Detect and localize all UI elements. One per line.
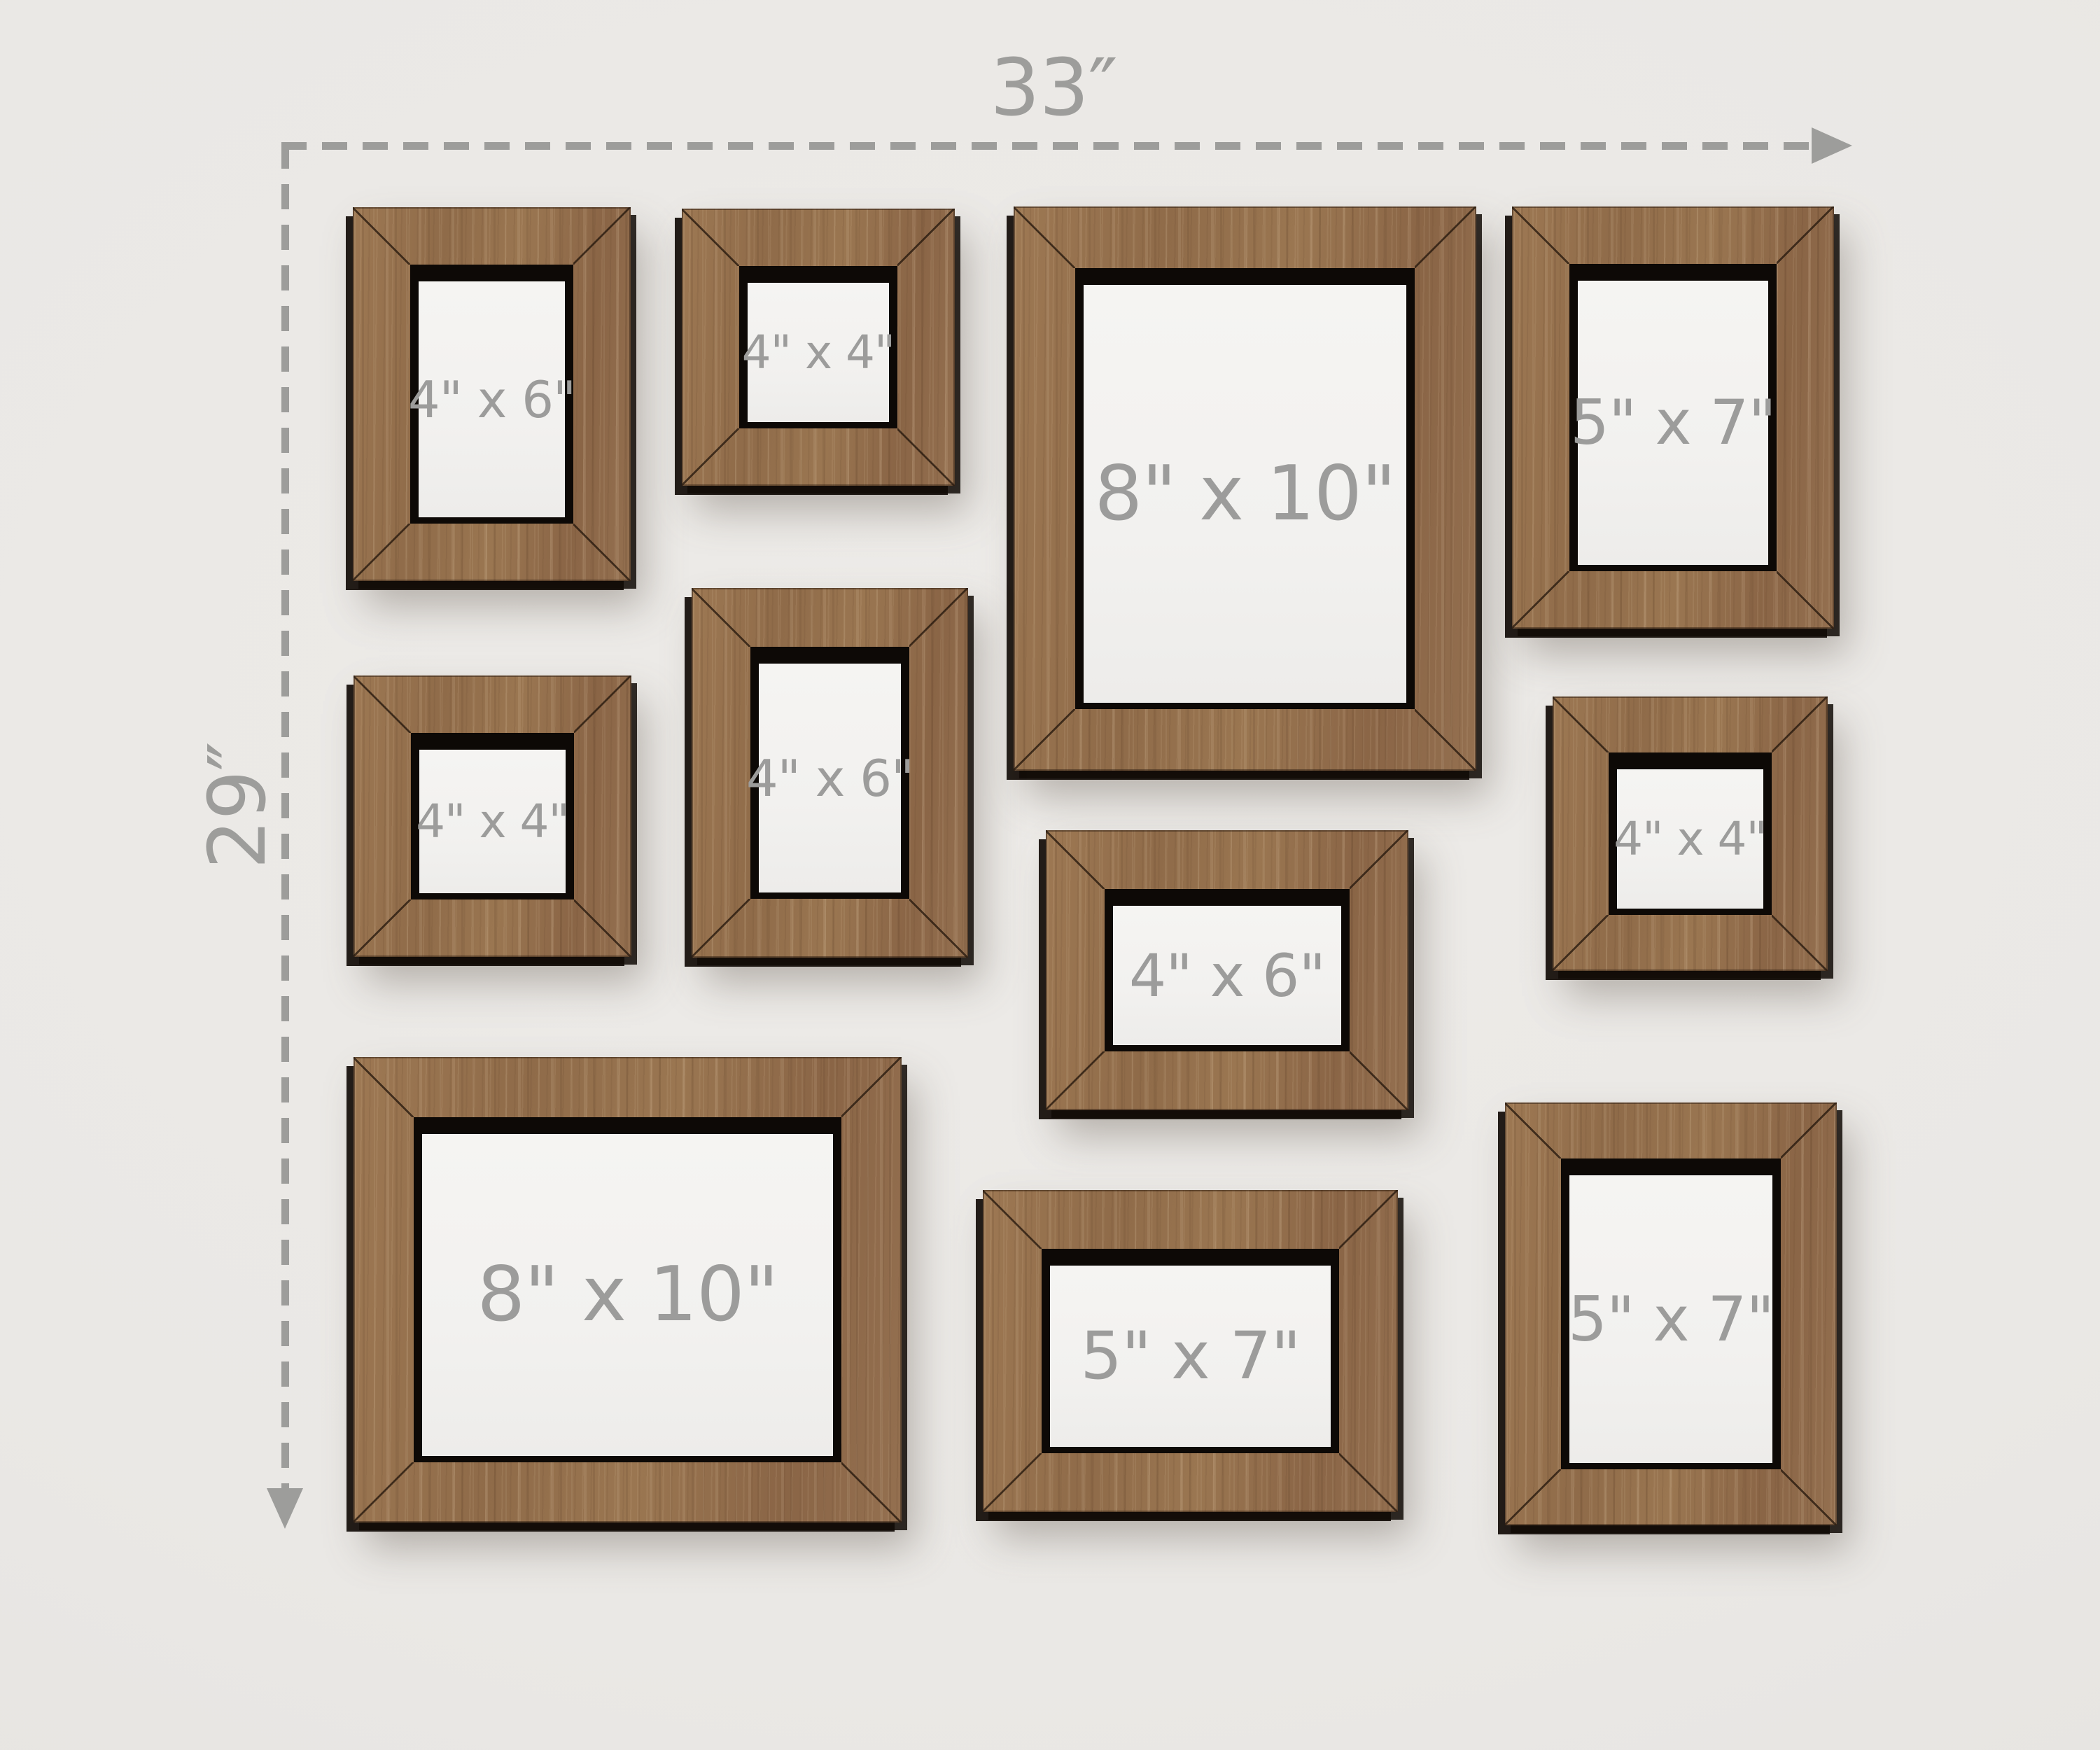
frame-opening: 4" x 4" <box>1609 752 1772 915</box>
frame-4x6-center-landscape: 4" x 6" <box>1046 830 1408 1110</box>
frame-4x6-top-left: 4" x 6" <box>353 207 631 581</box>
frame-5x7-bottom-landscape: 5" x 7" <box>983 1190 1398 1512</box>
frame-size-label: 4" x 4" <box>416 799 569 845</box>
frame-size-label: 4" x 4" <box>1613 816 1767 862</box>
frame-size-label: 5" x 7" <box>1080 1324 1300 1389</box>
frame-8x10-top: 8" x 10" <box>1014 206 1476 771</box>
gallery-wall-mockup: 33″ 29″ 4" x 6" 4" x 4" 8" x 10" 5" x 7"… <box>0 0 2100 1750</box>
frame-opening: 5" x 7" <box>1561 1158 1781 1469</box>
width-dimension-label: 33″ <box>973 49 1134 127</box>
arrow-down-icon <box>267 1488 303 1529</box>
height-dimension-line <box>281 143 289 1491</box>
frame-4x6-middle: 4" x 6" <box>692 588 968 958</box>
frame-size-label: 4" x 4" <box>742 330 895 376</box>
frame-opening: 4" x 6" <box>750 647 909 899</box>
frame-5x7-top-right: 5" x 7" <box>1512 206 1834 629</box>
frame-size-label: 5" x 7" <box>1568 1289 1774 1350</box>
frame-size-label: 4" x 6" <box>746 753 913 804</box>
frame-opening: 8" x 10" <box>1075 268 1415 709</box>
frame-size-label: 4" x 6" <box>1129 946 1325 1005</box>
frame-opening: 4" x 4" <box>739 266 897 428</box>
frame-opening: 4" x 6" <box>410 265 573 524</box>
frame-opening: 4" x 4" <box>411 733 574 899</box>
arrow-right-icon <box>1812 127 1852 164</box>
frame-4x4-middle-right: 4" x 4" <box>1553 696 1828 971</box>
frame-4x4-middle-left: 4" x 4" <box>353 675 631 957</box>
frame-opening: 8" x 10" <box>414 1117 841 1462</box>
frame-opening: 5" x 7" <box>1569 264 1777 571</box>
height-dimension-label: 29″ <box>199 718 277 893</box>
width-dimension-line <box>281 142 1814 150</box>
frame-8x10-bottom-left-landscape: 8" x 10" <box>353 1057 902 1522</box>
frame-size-label: 5" x 7" <box>1570 392 1776 454</box>
frame-size-label: 8" x 10" <box>477 1257 778 1333</box>
frame-5x7-bottom-right: 5" x 7" <box>1505 1102 1837 1525</box>
frame-size-label: 4" x 6" <box>408 374 575 425</box>
frame-4x4-top: 4" x 4" <box>682 209 955 486</box>
frame-size-label: 8" x 10" <box>1094 456 1395 532</box>
frame-opening: 5" x 7" <box>1042 1249 1339 1453</box>
frame-opening: 4" x 6" <box>1105 889 1350 1051</box>
